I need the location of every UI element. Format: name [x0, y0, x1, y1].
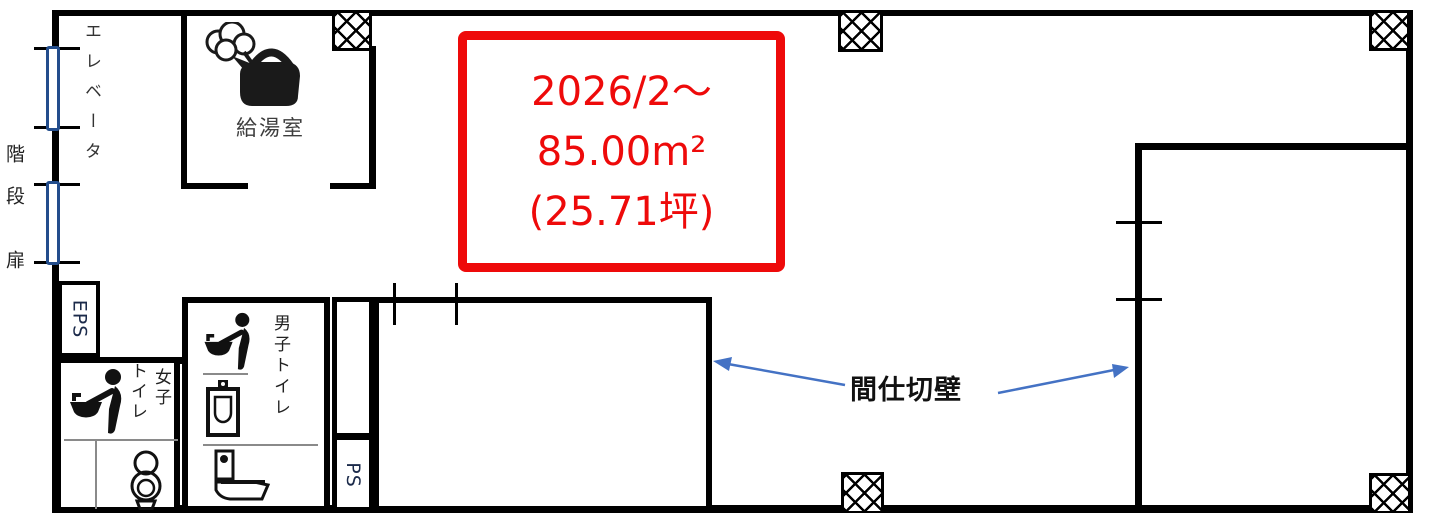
handwash-icon	[66, 368, 132, 434]
mens-toilet-divider-1	[203, 373, 248, 375]
ps-divider-wall	[332, 433, 374, 440]
kitchenette-wall-left	[181, 12, 187, 189]
urinal-icon	[205, 380, 241, 438]
kitchenette-label: 給湯室	[236, 112, 305, 142]
middle-room	[373, 297, 712, 512]
outer-wall-right	[1406, 10, 1413, 513]
womens-toilet-label-col1: 女子	[152, 368, 169, 408]
door-label: 扉	[4, 250, 23, 269]
outer-wall-top	[52, 10, 1412, 16]
kitchenette-wall-right	[369, 46, 376, 189]
door-jamb-tick	[455, 283, 458, 325]
outer-wall-left-seg2	[52, 128, 59, 184]
right-room-wall-top	[1135, 143, 1412, 150]
mens-toilet-label: 男子トイレ	[271, 314, 288, 419]
eps-room: EPS	[58, 281, 100, 357]
toilet-side-icon	[213, 449, 271, 501]
right-room-wall-left	[1135, 143, 1142, 510]
availability-date: 2026/2〜	[531, 62, 712, 122]
ps-label: PS	[342, 462, 364, 488]
elevator-door	[46, 46, 60, 131]
elevator-label: エレベータ	[82, 22, 99, 172]
availability-highlight-box: 2026/2〜 85.00m² (25.71坪)	[458, 31, 785, 272]
door-jamb-tick	[1116, 221, 1162, 224]
kitchenette-wall-bottom-left	[181, 183, 248, 189]
stairs-label: 階段	[4, 144, 23, 228]
floor-plan: エレベータ 階段 扉 給湯室 EPS 女子 トイレ	[0, 0, 1429, 523]
door-jamb-tick	[1116, 298, 1162, 301]
column-pillar	[841, 472, 884, 511]
partition-wall-label: 間仕切壁	[850, 368, 962, 407]
outer-wall-left-seg1	[52, 10, 59, 48]
womens-toilet-divider-h	[64, 439, 178, 441]
womens-toilet-divider-v	[95, 441, 97, 509]
column-pillar	[1369, 473, 1411, 511]
door-jamb-tick	[393, 283, 396, 325]
mens-toilet-divider-2	[203, 444, 318, 446]
column-pillar	[1369, 13, 1410, 51]
eps-label: EPS	[68, 300, 90, 339]
area-sqm: 85.00m²	[537, 122, 707, 182]
handwash-icon	[201, 312, 259, 370]
womens-toilet-label-col2: トイレ	[128, 362, 145, 422]
stair-door	[46, 181, 60, 265]
area-tsubo: (25.71坪)	[529, 182, 715, 242]
ps-cell: PS	[332, 440, 374, 510]
kettle-icon	[192, 22, 310, 112]
column-pillar	[332, 13, 372, 51]
column-pillar	[838, 13, 883, 52]
toilet-front-icon	[124, 450, 168, 510]
